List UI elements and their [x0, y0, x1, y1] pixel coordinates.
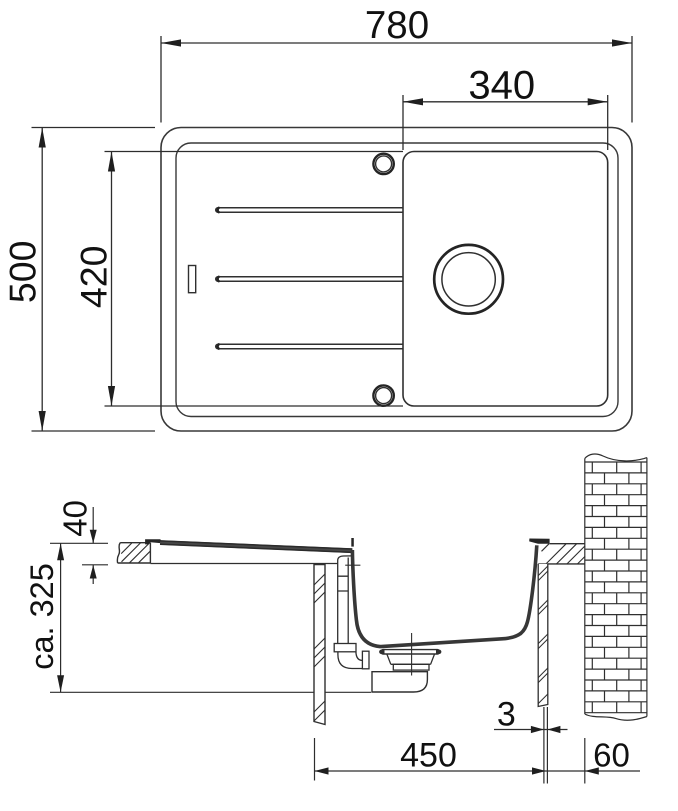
svg-text:500: 500	[2, 241, 44, 304]
svg-text:ca. 325: ca. 325	[24, 563, 60, 670]
svg-text:420: 420	[73, 246, 115, 309]
svg-text:340: 340	[468, 63, 535, 107]
svg-text:40: 40	[57, 500, 94, 537]
svg-text:60: 60	[593, 736, 630, 773]
svg-text:780: 780	[365, 4, 429, 47]
svg-text:450: 450	[400, 736, 457, 774]
svg-text:3: 3	[497, 695, 516, 733]
